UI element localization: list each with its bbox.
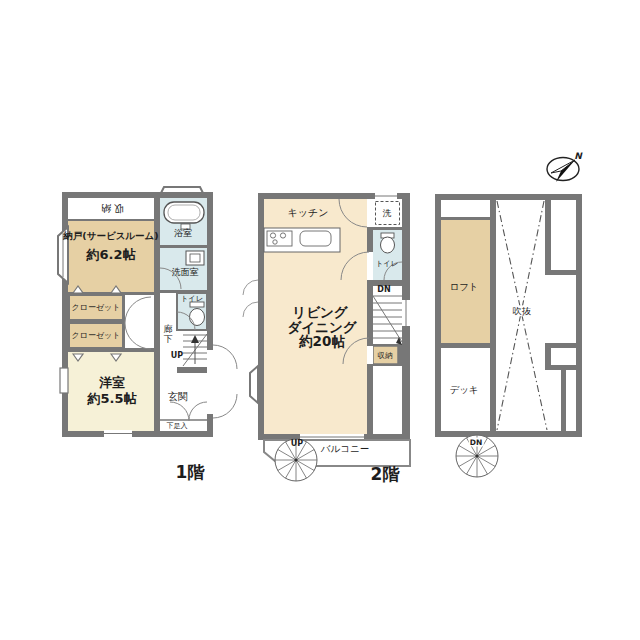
sink-icon	[186, 251, 204, 265]
floor3-loft-label: ロフト	[449, 281, 478, 292]
floor1-western-room-label: 洋室	[99, 375, 125, 391]
floor1-washroom-label: 洗面室	[172, 267, 199, 278]
floor2-stairs-up-label: UP	[291, 439, 303, 449]
window-arc	[243, 302, 258, 317]
window-arc	[243, 280, 258, 295]
entrance-door-arc	[213, 394, 237, 418]
floor1-shoe-cupboard-label: 下足入	[167, 422, 188, 430]
floor1-western-room-size: 約5.5帖	[87, 391, 136, 407]
floor1-service-room-label: 納戸(サービスルーム)	[63, 230, 158, 241]
floor1-entrance-label: 玄関	[168, 391, 188, 403]
floor2-label: 2階	[371, 464, 400, 484]
toilet-icon	[190, 302, 205, 326]
floor2-toilet-label: トイレ	[375, 259, 398, 268]
toilet-icon	[381, 233, 395, 253]
floor3-stairs-down-label: DN	[469, 438, 484, 447]
floor1-stairs-up-label: UP	[171, 351, 183, 361]
floor1-bathroom-label: 浴室	[174, 228, 192, 239]
floor2-storage-label: 収納	[378, 351, 393, 360]
floor2-stairs-down-label: DN	[377, 285, 390, 295]
floor1-label: 1階	[176, 462, 205, 482]
floor3-atrium-label: 吹抜	[512, 305, 533, 316]
floor1-hallway-label: 廊下	[161, 325, 175, 345]
floor2-living-size: 約20帖	[299, 333, 345, 349]
floor1-toilet-label: トイレ	[180, 294, 203, 303]
floor3-deck-label: デッキ	[449, 384, 478, 395]
floorplan-page: 収納 納戸(サービスルーム) 約6.2帖 浴室 洗面室 トイレ クローゼット ク…	[0, 0, 640, 640]
floor3-plan	[435, 194, 582, 477]
floor1-closet1-label: クローゼット	[72, 303, 121, 313]
entrance-door-arc	[213, 345, 237, 369]
floor1-service-room-size: 約6.2帖	[86, 247, 135, 263]
floor2-living-label-1: リビング	[292, 304, 347, 320]
floor1-top-closet-label: 収納	[98, 202, 124, 214]
floor2-kitchen-label: キッチン	[288, 207, 329, 219]
bay-window-icon	[250, 366, 258, 403]
kitchen-counter-icon	[264, 228, 340, 252]
window-icon	[60, 368, 68, 393]
compass-north-label: N	[574, 151, 582, 162]
floor2-laundry-label: 洗	[383, 208, 392, 218]
floor2-balcony-label: バルコニー	[321, 443, 369, 454]
floor1-closet2-label: クローゼット	[72, 331, 121, 341]
